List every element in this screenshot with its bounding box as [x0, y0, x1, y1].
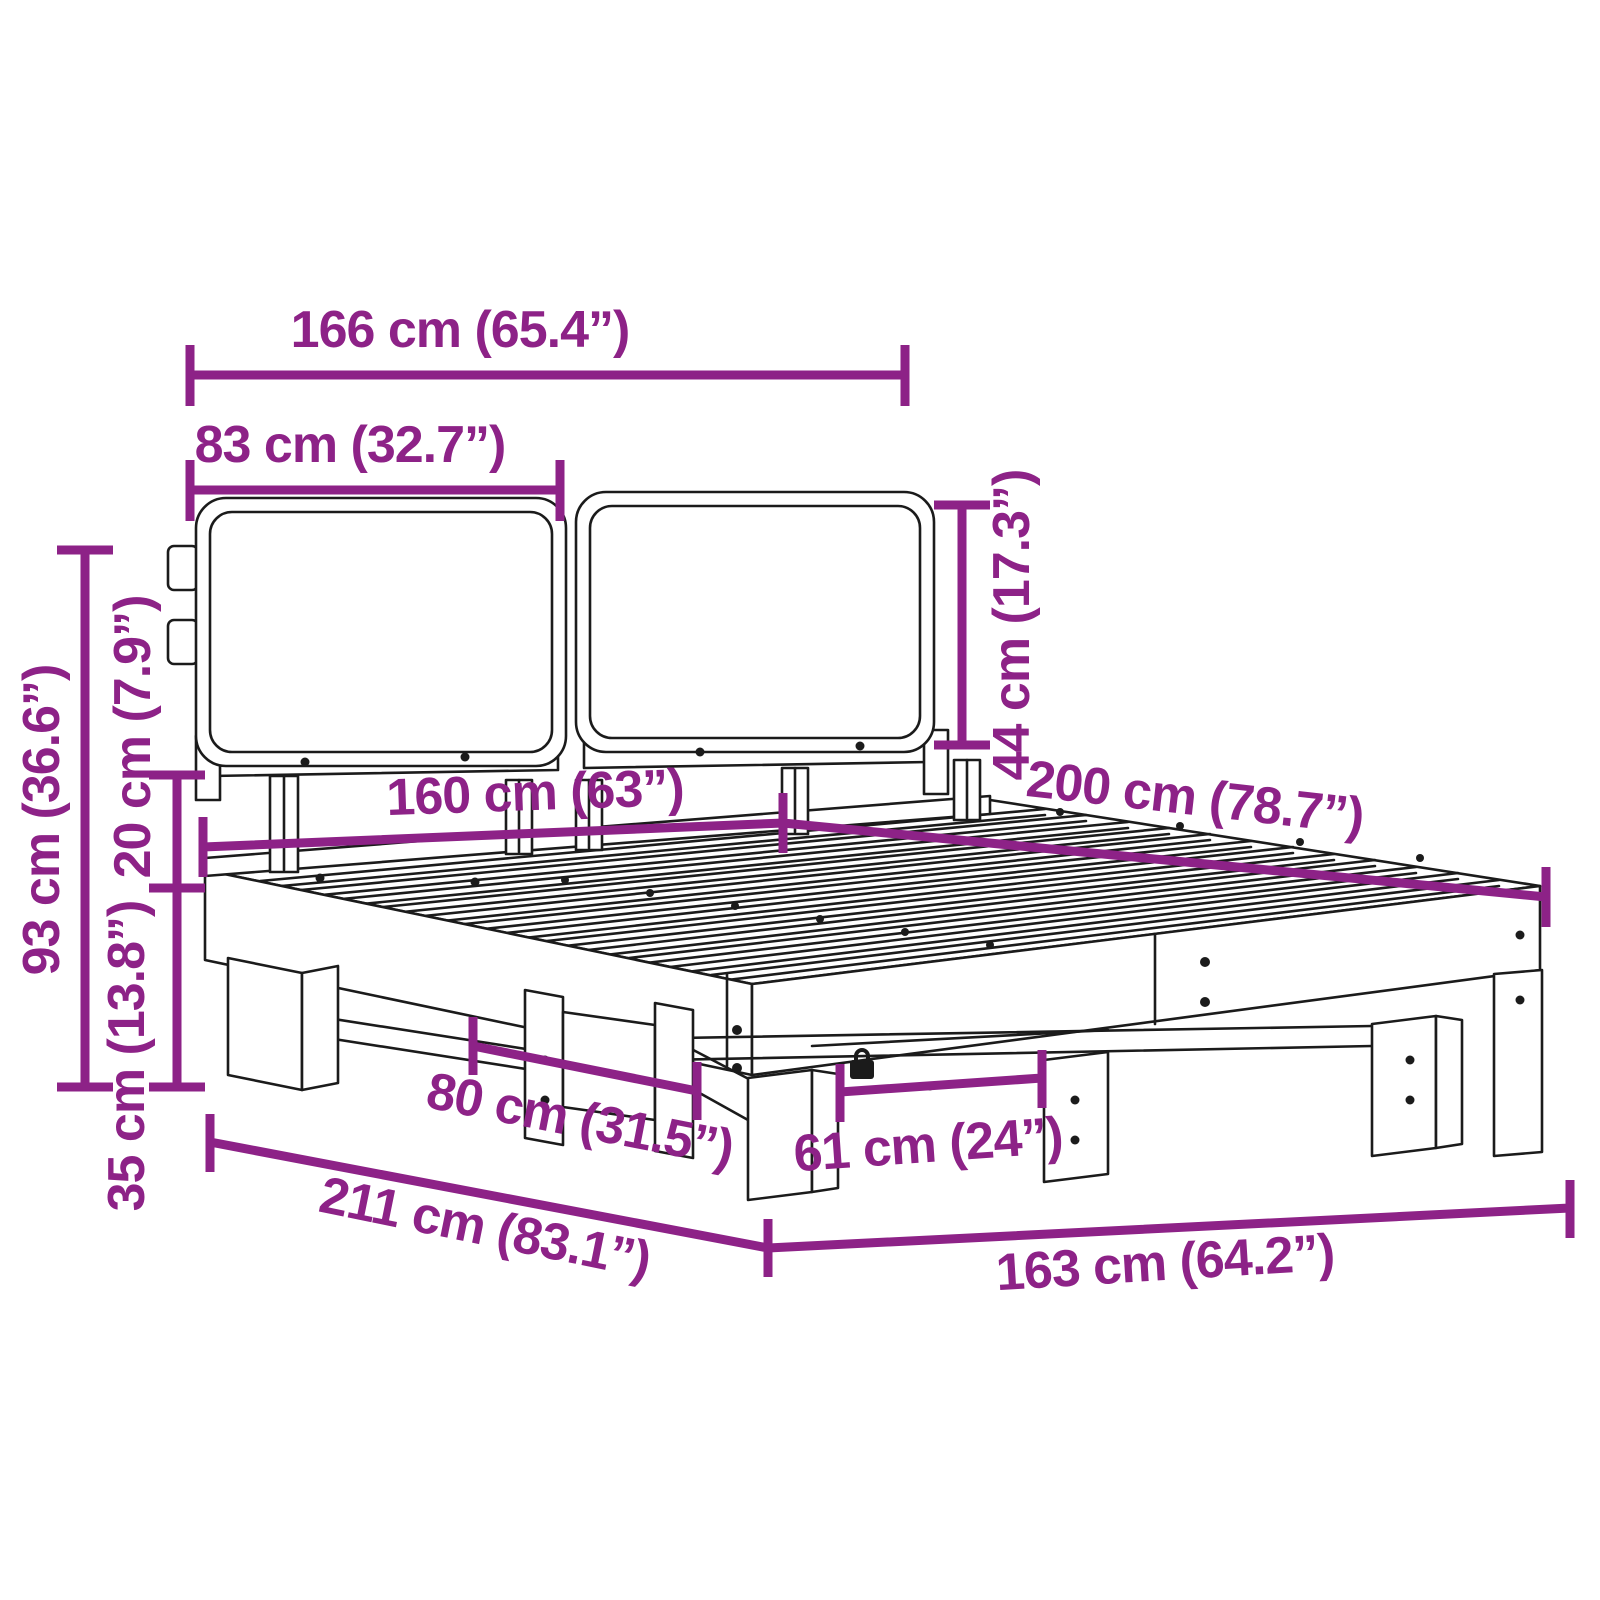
dim-headboard-height: 93 cm (36.6”)	[12, 665, 72, 976]
dim-cushion-width: 83 cm (32.7”)	[195, 415, 506, 475]
headboard-tab	[168, 546, 198, 590]
dim-headboard-width: 166 cm (65.4”)	[291, 300, 630, 360]
dim-bed-width: 160 cm (63”)	[385, 758, 684, 828]
dim-clearance-height: 20 cm (7.9”)	[103, 596, 163, 879]
dim-frame-height: 35 cm (13.8”)	[97, 901, 157, 1212]
dimension-diagram: 166 cm (65.4”) 83 cm (32.7”) 44 cm (17.3…	[0, 0, 1600, 1600]
headboard-tab	[168, 620, 198, 664]
dim-cushion-height: 44 cm (17.3”)	[982, 470, 1042, 781]
headboard-cushions	[196, 492, 934, 766]
